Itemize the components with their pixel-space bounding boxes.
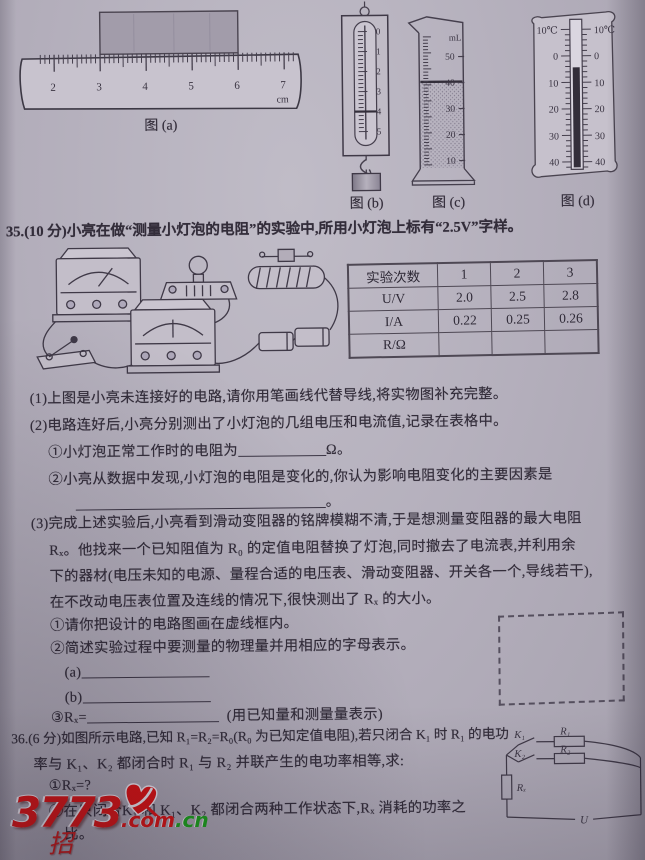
thermo-label-left: 10℃ xyxy=(537,26,558,37)
ruler-number: 6 xyxy=(234,80,240,92)
table-cell xyxy=(439,332,492,357)
spring-number: 3 xyxy=(376,86,381,96)
answer-blank xyxy=(238,441,326,457)
q35-item3-line2: Rₓ。他找来一个已知阻值为 R₀ 的定值电阻替换了灯泡,同时撤去了电流表,并利用… xyxy=(49,533,576,560)
q35-item2-1-text: ①小灯泡正常工作时的电阻为 xyxy=(48,443,238,461)
cylinder-tick-label: 40 xyxy=(445,79,455,89)
answer-blank xyxy=(76,493,326,511)
thermo-label-left: 10 xyxy=(548,79,558,90)
q36-line3: ①Rₓ=? xyxy=(49,777,92,794)
ruler-body xyxy=(20,54,302,111)
table-cell: 0.22 xyxy=(438,309,491,333)
ruler-number: 4 xyxy=(142,81,148,93)
answer-blank xyxy=(82,687,210,703)
spring-number: 1 xyxy=(376,46,381,56)
table-cell xyxy=(545,330,599,355)
period: 。 xyxy=(326,494,341,510)
thermometer-svg: 10℃ 0 10 20 30 40 10℃ 0 10 20 30 40 xyxy=(522,9,628,182)
q35-item3-line1: (3)完成上述实验后,小亮看到滑动变阻器的铭牌模糊不清,于是想测量变阻器的最大电… xyxy=(31,506,582,533)
rx-label: Rₓ xyxy=(516,783,527,794)
q35-item3-sub1: ①请你把设计的电路图画在虚线框内。 xyxy=(50,611,298,635)
figure-label-b: 图 (b) xyxy=(334,192,400,213)
answer-blank xyxy=(87,707,219,723)
figure-label-c: 图 (c) xyxy=(401,191,497,212)
table-cell xyxy=(492,331,545,356)
q35-item2-1-unit: Ω。 xyxy=(326,442,352,458)
thermo-label-left: 0 xyxy=(553,52,558,63)
cylinder-tick-label: 10 xyxy=(446,157,456,167)
ruler-number: 5 xyxy=(188,80,194,92)
branch1 xyxy=(506,737,640,759)
rx-equals: ③Rₓ= xyxy=(51,709,87,725)
hanger-ring xyxy=(360,7,369,16)
thermo-label-right: 0 xyxy=(594,51,599,62)
table-row-label: R/Ω xyxy=(349,333,439,358)
paper-sheet: 2 3 4 5 6 7 cm 图 (a) 0 1 2 3 4 5 图 (b) xyxy=(0,0,645,860)
spring-number: 0 xyxy=(376,26,381,36)
hook xyxy=(360,159,370,174)
thermometer-mercury xyxy=(573,67,581,167)
q35-item2: (2)电路连好后,小亮分别测出了小灯泡的几组电压和电流值,记录在表格中。 xyxy=(30,409,508,435)
spring-number: 2 xyxy=(376,66,381,76)
thermo-label-right: 20 xyxy=(595,104,605,115)
bottom-wire xyxy=(507,815,641,820)
q36-circuit-svg: K₁ R₁ K₂ R₂ Rₓ U xyxy=(490,728,645,842)
table-header-cell: 2 xyxy=(490,261,543,286)
ruler-unit: cm xyxy=(276,94,289,105)
thermo-label-left: 30 xyxy=(549,132,559,143)
q35-item1: (1)上图是小亮未连接好的电路,请你用笔画线代替导线,将实物图补充完整。 xyxy=(30,382,508,408)
scanned-exam-page: 2 3 4 5 6 7 cm 图 (a) 0 1 2 3 4 5 图 (b) xyxy=(0,0,645,860)
circuit-photo-sketch xyxy=(26,244,342,382)
u-label: U xyxy=(580,814,589,826)
figure-label-d: 图 (d) xyxy=(520,190,636,211)
q35-item2-2: ②小亮从数据中发现,小灯泡的电阻是变化的,你认为影响电阻变化的主要因素是 xyxy=(48,463,552,489)
q36-line4: ②在只闭合K₁ 和 K₁、K₂ 都闭合两种工作状态下,Rₓ 消耗的功率之 xyxy=(49,796,466,821)
table-row-label: U/V xyxy=(348,287,438,312)
rx-resistor xyxy=(502,775,512,799)
r1-label: R₁ xyxy=(559,726,570,737)
dashed-answer-box xyxy=(498,611,625,705)
spring-number: 4 xyxy=(377,106,382,116)
spring-number: 5 xyxy=(377,126,382,136)
graduated-cylinder-svg: mL 50 40 30 20 10 xyxy=(401,10,491,189)
rheostat-sketch xyxy=(248,249,324,289)
left-wire xyxy=(506,755,507,817)
branch2 xyxy=(506,754,640,769)
q35-item3-line3: 下的器材(电压未知的电源、量程合适的电压表、滑动变阻器、开关各一个,导线若干), xyxy=(49,559,593,586)
thermo-label-right: 10 xyxy=(594,78,604,89)
q35-answer-a: (a) xyxy=(64,660,209,682)
table-cell: 2.8 xyxy=(544,284,598,308)
ruler-number: 7 xyxy=(280,79,286,91)
table-header-cell: 3 xyxy=(543,260,597,285)
right-wire xyxy=(640,758,641,815)
voltmeter-sketch xyxy=(127,299,220,373)
table-cell: 0.25 xyxy=(491,308,544,332)
label-a: (a) xyxy=(64,665,81,681)
cylinder-tick-label: 20 xyxy=(446,131,456,141)
thermo-label-right: 10℃ xyxy=(594,25,615,36)
k2-label: K₂ xyxy=(513,749,525,760)
q36-line2: 率与 K₁、K₂ 都闭合时 R₁ 与 R₂ 并联产生的电功率相等,求: xyxy=(33,749,404,774)
bulb-sketch xyxy=(160,256,236,300)
thermo-label-left: 40 xyxy=(549,158,559,169)
table-header-cell: 实验次数 xyxy=(348,263,438,288)
spring-scale-svg: 0 1 2 3 4 5 xyxy=(334,1,400,192)
ruler-number: 2 xyxy=(50,82,56,94)
table-header-cell: 1 xyxy=(437,262,490,287)
thermo-label-right: 30 xyxy=(595,131,605,142)
answer-blank xyxy=(81,662,209,678)
ruler-figure-svg: 2 3 4 5 6 7 cm xyxy=(14,6,307,117)
label-b: (b) xyxy=(65,690,83,706)
cylinder-unit: mL xyxy=(449,33,462,43)
q35-item3-line4: 在不改动电压表位置及连线的情况下,很快测出了 Rₓ 的大小。 xyxy=(50,587,441,612)
table-row-label: I/A xyxy=(349,310,439,335)
thermo-label-right: 40 xyxy=(595,157,605,168)
table-row: R/Ω xyxy=(349,330,598,358)
q35-item2-1: ①小灯泡正常工作时的电阻为Ω。 xyxy=(48,438,352,462)
table-cell: 2.5 xyxy=(491,285,544,309)
weight xyxy=(352,173,380,190)
battery-sketch xyxy=(259,328,329,351)
q35-heading: 35.(10 分)小亮在做“测量小灯泡的电阻”的实验中,所用小灯泡上标有“2.5… xyxy=(6,215,523,241)
table-cell: 0.26 xyxy=(544,307,598,331)
data-table: 实验次数 1 2 3 U/V 2.0 2.5 2.8 I/A 0.22 0.25… xyxy=(347,259,600,359)
figure-label-a: 图 (a) xyxy=(15,113,307,136)
cylinder-base xyxy=(412,168,474,185)
table-cell: 2.0 xyxy=(438,286,491,310)
k1-label: K₁ xyxy=(513,730,525,741)
ruler-number: 3 xyxy=(96,81,102,93)
thermo-label-left: 20 xyxy=(549,105,559,116)
wire xyxy=(322,276,338,330)
q36-line1: 36.(6 分)如图所示电路,已知 R₁=R₂=R₀(R₀ 为已知定值电阻),若… xyxy=(11,722,509,747)
q35-item3-sub2: ②简述实验过程中要测量的物理量并用相应的字母表示。 xyxy=(50,633,415,658)
q36-line5: 比。 xyxy=(64,822,93,843)
cylinder-tick-label: 50 xyxy=(445,53,455,63)
hint-text: (用已知量和测量量表示) xyxy=(227,706,383,724)
measured-block xyxy=(100,11,238,54)
cylinder-tick-label: 30 xyxy=(446,105,456,115)
r2-label: R₂ xyxy=(559,744,571,755)
